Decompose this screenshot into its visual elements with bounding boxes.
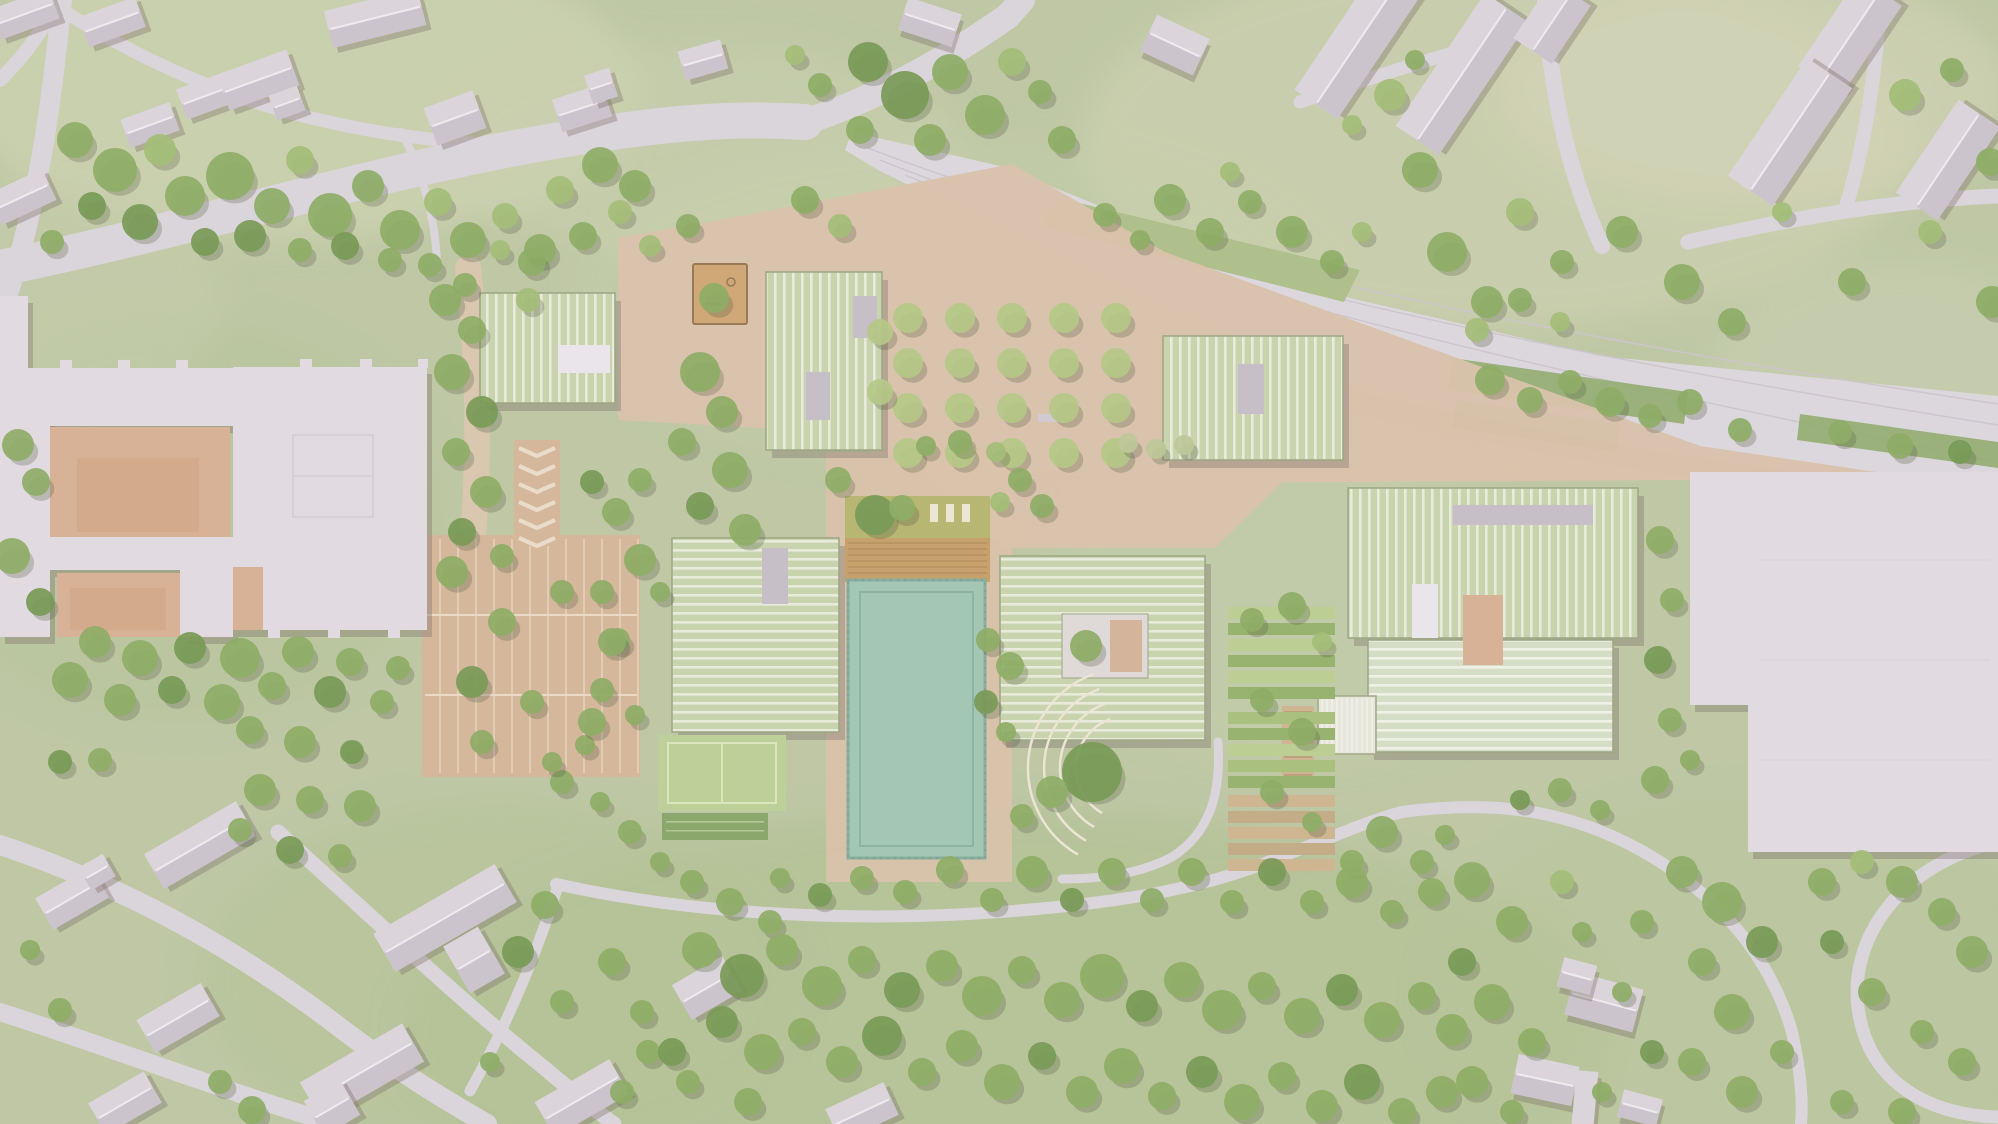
masterplan-image	[0, 0, 1998, 1124]
veil-layer	[0, 0, 1998, 1124]
site-plan-svg	[0, 0, 1998, 1124]
